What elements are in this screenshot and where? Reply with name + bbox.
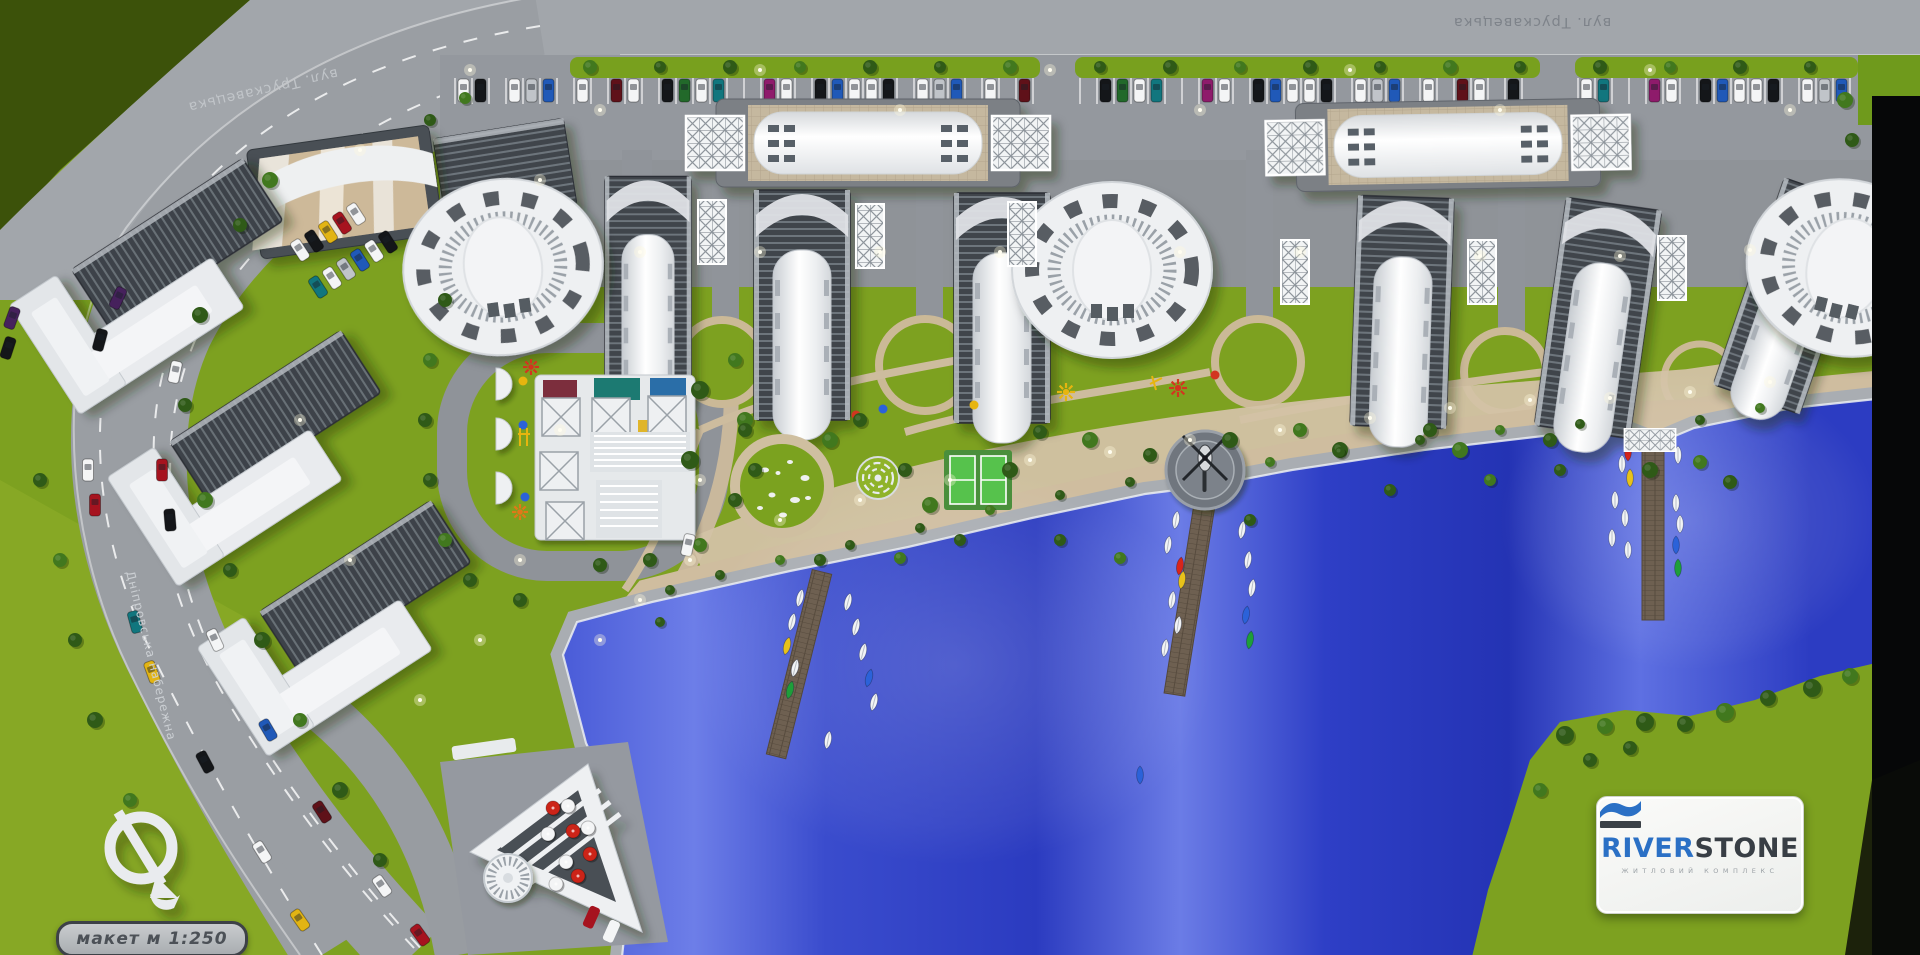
car: [509, 79, 520, 102]
tree-highlight: [1246, 516, 1251, 521]
tree-highlight: [924, 499, 930, 505]
lamp: [1618, 254, 1622, 258]
tree: [1244, 514, 1256, 526]
car-windshield: [766, 84, 773, 90]
tree: [1484, 474, 1496, 486]
car: [1287, 79, 1298, 102]
car: [1423, 79, 1434, 102]
tree-highlight: [425, 355, 431, 361]
car-windshield: [1425, 84, 1432, 90]
tree-highlight: [334, 784, 340, 790]
logo-plaque: RIVERSTONE ЖИТЛОВИЙ КОМПЛЕКС: [1596, 796, 1804, 914]
lamp: [538, 178, 542, 182]
tree: [1452, 442, 1468, 458]
car: [1151, 79, 1162, 102]
car-windshield: [919, 84, 926, 90]
tree-highlight: [1695, 457, 1701, 463]
sun-center: [517, 509, 523, 515]
lattice-panel: [856, 204, 884, 268]
pyramid-skylight: [540, 452, 578, 490]
tree-highlight: [725, 62, 731, 68]
umbrella-top: [572, 830, 575, 833]
tree: [794, 61, 806, 73]
car: [1666, 79, 1677, 102]
playground-dot: [1211, 371, 1220, 380]
tree: [728, 493, 742, 507]
tree-highlight: [1666, 63, 1671, 68]
tree: [1723, 475, 1737, 489]
tree-highlight: [1417, 437, 1421, 441]
pyramid-skylight: [592, 398, 630, 436]
tree: [665, 585, 675, 595]
playground-sun: [1169, 379, 1187, 397]
tree-highlight: [855, 415, 861, 421]
tree: [424, 114, 436, 126]
tree-highlight: [656, 63, 661, 68]
car-windshield: [1289, 84, 1296, 90]
round-atrium-roof: [484, 854, 532, 902]
car-windshield: [528, 84, 535, 90]
car-windshield: [1357, 84, 1364, 90]
car: [611, 79, 622, 102]
tree-highlight: [1004, 464, 1010, 470]
car-windshield: [987, 84, 994, 90]
car-windshield: [1821, 84, 1828, 90]
tree-highlight: [667, 587, 671, 591]
car: [1734, 79, 1745, 102]
tree-highlight: [645, 555, 651, 561]
car: [1474, 79, 1485, 102]
tree: [1055, 490, 1065, 500]
tree-highlight: [425, 475, 431, 481]
car: [1751, 79, 1762, 102]
tree-highlight: [1224, 434, 1230, 440]
lattice-panel: [1624, 429, 1675, 451]
tree: [1693, 455, 1707, 469]
tree-highlight: [440, 295, 446, 301]
tree: [715, 570, 725, 580]
tree: [87, 712, 103, 728]
tree: [1423, 423, 1437, 437]
lamp: [1188, 438, 1192, 442]
car: [1270, 79, 1281, 102]
tree-highlight: [730, 355, 736, 361]
car: [1598, 79, 1609, 102]
car-windshield: [1668, 84, 1675, 90]
tree-highlight: [1165, 62, 1171, 68]
tree: [723, 60, 737, 74]
apartment-slab: [1349, 195, 1454, 448]
car: [696, 79, 707, 102]
car-windshield: [1102, 84, 1109, 90]
lamp: [1608, 396, 1612, 400]
car-windshield: [936, 84, 943, 90]
lamp: [1648, 68, 1652, 72]
playground-sun: [1057, 383, 1075, 401]
umbrella-top: [589, 853, 592, 856]
tree-highlight: [1577, 421, 1581, 425]
tree: [728, 353, 742, 367]
tree: [1760, 690, 1776, 706]
tree: [1003, 60, 1017, 74]
lamp: [1448, 406, 1452, 410]
tree-highlight: [194, 309, 200, 315]
tree-highlight: [426, 116, 431, 121]
playground-dot: [519, 377, 528, 386]
lamp: [1498, 108, 1502, 112]
tree-highlight: [1454, 444, 1460, 450]
lamp: [468, 68, 472, 72]
tree: [1265, 457, 1275, 467]
car-windshield: [868, 84, 875, 90]
umbrella-top: [552, 807, 555, 810]
lamp: [358, 148, 362, 152]
boat: [1622, 509, 1629, 527]
tree: [1642, 462, 1658, 478]
car-windshield: [817, 84, 824, 90]
tree-highlight: [796, 63, 801, 68]
tree-highlight: [1806, 682, 1813, 689]
tree-highlight: [1585, 755, 1591, 761]
umbrella-top: [577, 875, 580, 878]
car-windshield: [85, 464, 92, 470]
tree: [1495, 425, 1505, 435]
lamp: [1028, 458, 1032, 462]
tree-highlight: [1545, 435, 1551, 441]
tree-highlight: [740, 425, 746, 431]
boat: [1673, 494, 1680, 512]
tree-highlight: [595, 560, 601, 566]
tree: [1082, 432, 1098, 448]
lamp: [1048, 68, 1052, 72]
lamp: [1108, 450, 1112, 454]
car: [713, 79, 724, 102]
boat: [1625, 541, 1632, 559]
tree-highlight: [35, 475, 41, 481]
tree: [922, 497, 938, 513]
tree: [654, 61, 666, 73]
tree-highlight: [824, 434, 830, 440]
tree: [643, 553, 657, 567]
tree-highlight: [936, 63, 941, 68]
lamp: [1298, 250, 1302, 254]
tree: [655, 617, 665, 627]
tree-highlight: [1735, 62, 1741, 68]
tree-highlight: [694, 384, 701, 391]
lamp: [598, 638, 602, 642]
tree: [691, 381, 709, 399]
tree-highlight: [125, 795, 131, 801]
car: [1355, 79, 1366, 102]
car-windshield: [1753, 84, 1760, 90]
car-windshield: [783, 84, 790, 90]
car-windshield: [1119, 84, 1126, 90]
tree: [1033, 425, 1047, 439]
tree-highlight: [1035, 427, 1041, 433]
tree: [373, 853, 387, 867]
tree-highlight: [1516, 63, 1521, 68]
playground-dot: [879, 405, 888, 414]
tree: [814, 554, 826, 566]
car-windshield: [664, 84, 671, 90]
car-windshield: [92, 499, 99, 505]
tree-highlight: [1639, 716, 1646, 723]
tree-highlight: [1595, 62, 1601, 68]
car: [1019, 79, 1030, 102]
car-windshield: [630, 84, 637, 90]
tree-highlight: [816, 556, 821, 561]
lamp: [638, 598, 642, 602]
car: [1219, 79, 1230, 102]
tree-highlight: [1057, 492, 1061, 496]
lamp: [758, 68, 762, 72]
lamp: [698, 478, 702, 482]
tree-highlight: [1844, 670, 1850, 676]
tree-highlight: [1267, 459, 1271, 463]
tree-highlight: [739, 414, 745, 420]
car: [1372, 79, 1383, 102]
umbrella-top: [567, 805, 570, 808]
tree: [845, 540, 855, 550]
car: [157, 459, 168, 481]
lamp: [1688, 390, 1692, 394]
car-windshield: [1702, 84, 1709, 90]
tree-highlight: [1005, 62, 1011, 68]
tree: [463, 573, 477, 587]
car-windshield: [1459, 84, 1466, 90]
tree: [915, 523, 925, 533]
car: [1768, 79, 1779, 102]
lamp: [298, 418, 302, 422]
boat-hull: [1137, 766, 1144, 784]
tree-highlight: [657, 619, 661, 623]
tree: [223, 563, 237, 577]
hedge-maze: [857, 457, 899, 499]
car-windshield: [1476, 84, 1483, 90]
tree: [775, 555, 785, 565]
car: [543, 79, 554, 102]
boat-hull: [1675, 559, 1682, 577]
car-windshield: [166, 514, 173, 521]
tree-highlight: [1056, 536, 1061, 541]
car: [1389, 79, 1400, 102]
lattice-panel: [1658, 236, 1686, 300]
tree: [1837, 92, 1853, 108]
tree-highlight: [264, 174, 270, 180]
tree: [254, 632, 270, 648]
tree: [423, 473, 437, 487]
tree-highlight: [256, 634, 262, 640]
tree: [1163, 60, 1177, 74]
car: [577, 79, 588, 102]
car-windshield: [1651, 84, 1658, 90]
car-windshield: [511, 84, 518, 90]
tree-highlight: [1806, 63, 1811, 68]
tree-highlight: [1697, 417, 1701, 421]
tree: [1556, 726, 1574, 744]
tree: [1374, 61, 1386, 73]
car-windshield: [1838, 84, 1845, 90]
car: [1700, 79, 1711, 102]
tree: [1845, 133, 1859, 147]
car: [1321, 79, 1332, 102]
logo-flag-icon: [1597, 797, 1643, 831]
tree-highlight: [1084, 434, 1090, 440]
tree-highlight: [684, 454, 691, 461]
apartment-slab: [754, 190, 850, 440]
car: [164, 509, 177, 532]
boat-hull: [1673, 536, 1680, 554]
tree: [822, 432, 838, 448]
tree-highlight: [730, 495, 736, 501]
tree: [1002, 462, 1018, 478]
tree-highlight: [1559, 729, 1566, 736]
boat: [1612, 491, 1619, 509]
car: [1202, 79, 1213, 102]
tree-highlight: [295, 715, 301, 721]
car: [1717, 79, 1728, 102]
tree-highlight: [180, 400, 186, 406]
playground-sun: [523, 359, 539, 375]
tree: [438, 293, 452, 307]
tree-highlight: [199, 494, 205, 500]
boat: [1619, 455, 1626, 473]
car: [1457, 79, 1468, 102]
tree-highlight: [375, 855, 381, 861]
tree-highlight: [1757, 405, 1761, 409]
tree-highlight: [1386, 486, 1391, 491]
lamp: [898, 108, 902, 112]
tree-highlight: [865, 62, 871, 68]
car-windshield: [460, 84, 467, 90]
tree-highlight: [1236, 63, 1241, 68]
street-top: [420, 0, 1920, 55]
lamp: [418, 698, 422, 702]
lamp: [598, 108, 602, 112]
tree: [423, 353, 437, 367]
car-windshield: [834, 84, 841, 90]
car-windshield: [681, 84, 688, 90]
tree: [293, 713, 307, 727]
tree-highlight: [1679, 718, 1685, 724]
tree: [1716, 703, 1734, 721]
tree: [1293, 423, 1307, 437]
car-windshield: [1272, 84, 1279, 90]
tree-highlight: [1445, 62, 1451, 68]
atrium-building: [686, 99, 1050, 187]
lamp: [1748, 248, 1752, 252]
tree: [1583, 753, 1597, 767]
car-windshield: [1255, 84, 1262, 90]
car-windshield: [1204, 84, 1211, 90]
tree: [1234, 61, 1246, 73]
lamp: [518, 558, 522, 562]
tree: [178, 398, 192, 412]
sun-center: [1063, 389, 1069, 395]
tree-highlight: [1644, 464, 1650, 470]
tree-highlight: [1096, 63, 1101, 68]
tree: [954, 534, 966, 546]
boat: [1137, 766, 1144, 784]
tree: [33, 473, 47, 487]
tree-highlight: [896, 554, 901, 559]
car: [1253, 79, 1264, 102]
tree: [934, 61, 946, 73]
tree-highlight: [1425, 425, 1431, 431]
tree: [438, 533, 452, 547]
tree-highlight: [900, 465, 906, 471]
tree-highlight: [1762, 692, 1768, 698]
car: [1819, 79, 1830, 102]
tree-highlight: [1535, 785, 1541, 791]
playground-sun: [512, 504, 528, 520]
tree: [1755, 403, 1765, 413]
tree-highlight: [717, 572, 721, 576]
tree: [262, 172, 278, 188]
tree-highlight: [695, 540, 701, 546]
canopy: [496, 368, 512, 504]
tree-highlight: [235, 220, 241, 226]
lamp: [1278, 428, 1282, 432]
car-windshield: [698, 84, 705, 90]
lamp: [1528, 398, 1532, 402]
street-label-top: вул. Трускавецька: [1453, 14, 1611, 30]
tree-highlight: [1497, 427, 1501, 431]
tree-highlight: [440, 535, 446, 541]
tree: [853, 413, 867, 427]
playground-dot: [521, 493, 530, 502]
tree-highlight: [777, 557, 781, 561]
tree-highlight: [1847, 135, 1853, 141]
tree: [418, 413, 432, 427]
tree-highlight: [465, 575, 471, 581]
car-windshield: [851, 84, 858, 90]
tree-highlight: [461, 94, 466, 99]
boat-hull: [1627, 469, 1634, 487]
lamp: [1368, 416, 1372, 420]
lamp: [1348, 68, 1352, 72]
courtyard: [1215, 319, 1301, 405]
car-windshield: [1221, 84, 1228, 90]
car-windshield: [1021, 84, 1028, 90]
tree-highlight: [55, 555, 61, 561]
scale-badge: макет м 1:250: [56, 921, 248, 955]
tree: [192, 307, 208, 323]
playground-dot: [970, 401, 979, 410]
tree: [681, 451, 699, 469]
tree-highlight: [1599, 720, 1605, 726]
lamp: [778, 518, 782, 522]
car-windshield: [1136, 84, 1143, 90]
lamp: [1768, 380, 1772, 384]
sun-center: [1175, 385, 1181, 391]
lamp: [1788, 108, 1792, 112]
lamp: [758, 250, 762, 254]
tree: [583, 60, 597, 74]
tree: [1695, 415, 1705, 425]
car-windshield: [953, 84, 960, 90]
tree: [1677, 716, 1693, 732]
car: [1649, 79, 1660, 102]
lamp: [688, 558, 692, 562]
tree: [1597, 718, 1613, 734]
tree: [894, 552, 906, 564]
tree-highlight: [956, 536, 961, 541]
car-windshield: [613, 84, 620, 90]
tree: [1125, 477, 1135, 487]
tree-highlight: [1486, 476, 1491, 481]
boat: [1675, 559, 1682, 577]
